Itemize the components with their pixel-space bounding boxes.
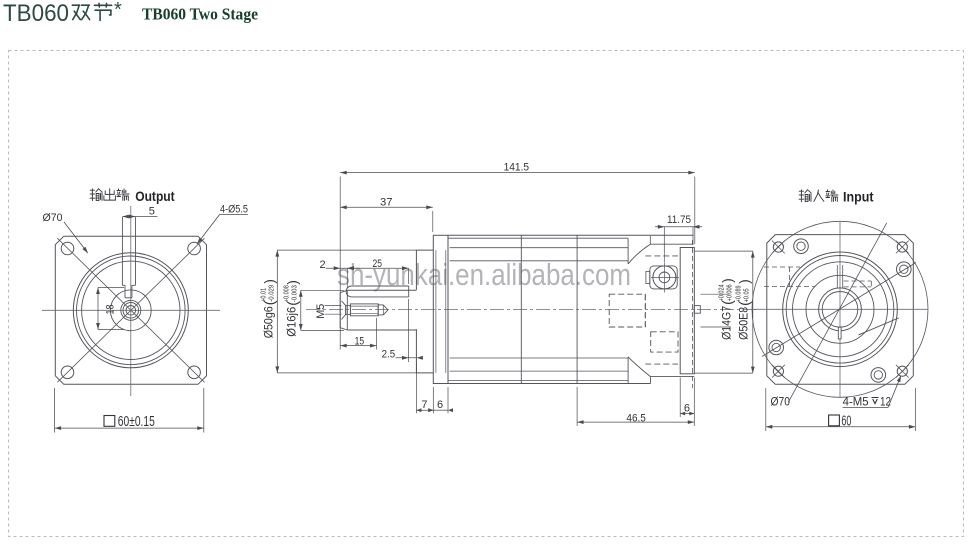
svg-text:11.75: 11.75 bbox=[667, 214, 691, 226]
svg-text:+0.089: +0.089 bbox=[735, 285, 742, 302]
svg-text:TB060 Two Stage: TB060 Two Stage bbox=[142, 5, 258, 24]
svg-text:+0.01: +0.01 bbox=[260, 288, 267, 302]
svg-text:*: * bbox=[114, 0, 122, 21]
svg-text:Ø50g6: Ø50g6 bbox=[264, 306, 276, 338]
svg-text:(: ( bbox=[284, 301, 300, 306]
svg-text:2: 2 bbox=[320, 259, 326, 271]
svg-text:Ø16j6: Ø16j6 bbox=[287, 307, 299, 337]
svg-text:5: 5 bbox=[149, 205, 155, 217]
svg-text:Ø14G7: Ø14G7 bbox=[722, 306, 734, 340]
svg-text:141.5: 141.5 bbox=[504, 161, 529, 173]
svg-text:Ø50E8: Ø50E8 bbox=[739, 307, 751, 340]
svg-text:TB060: TB060 bbox=[3, 0, 69, 27]
svg-text:-0.029: -0.029 bbox=[268, 285, 275, 302]
svg-text:Ø70: Ø70 bbox=[43, 212, 63, 224]
svg-text:): ) bbox=[284, 280, 300, 285]
svg-text:6: 6 bbox=[684, 403, 690, 415]
svg-text:): ) bbox=[261, 279, 277, 284]
svg-text:60: 60 bbox=[841, 414, 851, 430]
svg-text:Ø70: Ø70 bbox=[771, 397, 791, 409]
svg-text:4-Ø5.5: 4-Ø5.5 bbox=[220, 204, 248, 216]
svg-text:46.5: 46.5 bbox=[626, 412, 646, 424]
svg-text:18: 18 bbox=[105, 305, 117, 315]
svg-text:(: ( bbox=[719, 300, 735, 305]
svg-text:(: ( bbox=[261, 300, 277, 305]
svg-text:): ) bbox=[736, 279, 752, 284]
svg-text:M5: M5 bbox=[315, 304, 327, 319]
svg-text:+0.05: +0.05 bbox=[743, 288, 750, 302]
svg-text:): ) bbox=[719, 278, 735, 283]
svg-text:37: 37 bbox=[380, 196, 393, 208]
svg-text:12: 12 bbox=[880, 397, 891, 409]
svg-text:6: 6 bbox=[437, 399, 443, 411]
svg-text:60±0.15: 60±0.15 bbox=[118, 414, 155, 430]
svg-text:-0.003: -0.003 bbox=[291, 285, 298, 302]
svg-text:+0.024: +0.024 bbox=[718, 284, 725, 301]
svg-text:15: 15 bbox=[355, 335, 365, 347]
svg-text:+0.008: +0.008 bbox=[283, 285, 290, 302]
svg-text:25: 25 bbox=[373, 258, 383, 270]
svg-text:+0.006: +0.006 bbox=[726, 284, 733, 301]
svg-text:2.5: 2.5 bbox=[382, 348, 396, 360]
svg-text:4-M5: 4-M5 bbox=[843, 397, 869, 409]
svg-text:Output: Output bbox=[135, 188, 175, 204]
svg-text:(: ( bbox=[736, 301, 752, 306]
svg-text:Input: Input bbox=[843, 190, 874, 205]
svg-text:7: 7 bbox=[421, 399, 427, 411]
